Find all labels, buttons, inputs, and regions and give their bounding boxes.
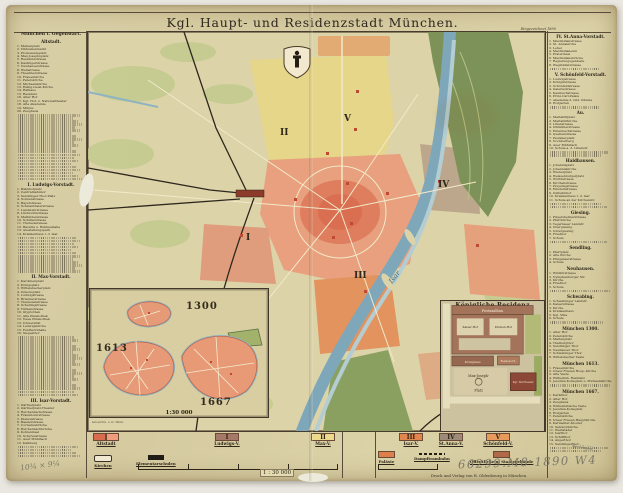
index-section-header: München 1300.	[549, 326, 612, 331]
maxjoseph-label-1: Max-Joseph-	[468, 374, 489, 378]
scanned-map-sheet: Kgl. Haupt- und Residenzstadt München. E…	[0, 0, 623, 493]
scale-bar	[138, 464, 338, 470]
street	[443, 304, 450, 409]
index-entry-illegible	[550, 68, 600, 71]
legend-swatch	[93, 433, 106, 441]
legend-district-ludwigsv: ILudwigs-V.	[212, 433, 242, 447]
inset-credit: Gezeichn. v. G. Wenz	[92, 420, 124, 424]
legend-district-isarv: IIIIsar-V.	[396, 433, 426, 447]
garden	[525, 314, 541, 354]
index-entry: 4. Schule	[549, 261, 612, 264]
year-label-1613: 1613	[96, 343, 128, 354]
district-numeral-1: I	[246, 233, 250, 243]
munich-1300-shape	[128, 302, 171, 326]
residenztheater-label: Residenz-Th.	[501, 360, 517, 363]
kuechenhof-label: Küchen-Hof	[495, 325, 513, 329]
legend-symbol-swatch: Paläste	[378, 451, 395, 464]
legend-district-maxv: IIMax-V.	[306, 433, 340, 447]
index-entry-illegible	[18, 394, 79, 397]
inset-scale-label: 1:30 000	[166, 410, 193, 416]
hoftheater-label: Kgl. Hof-Theater	[513, 381, 535, 384]
index-header: München i. Gegenwart.	[17, 32, 85, 37]
date-note: Eingezeichnet 1890	[521, 27, 556, 31]
koenigsbau-label: Königsbau	[465, 360, 481, 364]
index-section-header: Sendling.	[549, 245, 612, 250]
legend-swatch: III	[399, 433, 423, 441]
street-index-left: München i. Gegenwart. Altstadt.1. Marien…	[17, 32, 85, 478]
maxjoseph-label-2: Platz	[474, 389, 483, 393]
legend-swatch	[106, 433, 119, 441]
index-entry-illegible	[550, 241, 607, 244]
swatch-symbol-icon	[378, 451, 395, 458]
paper: Kgl. Haupt- und Residenzstadt München. E…	[6, 5, 617, 481]
page-title: Kgl. Haupt- und Residenzstadt München.	[167, 15, 459, 30]
index-entry-illegible	[550, 206, 607, 209]
festsaalbau-label: Festsaalbau	[482, 309, 504, 313]
legend-district-label: Altstadt	[90, 442, 122, 447]
inset-historic-maps: 1300 1613 1667 1:30 000	[89, 288, 269, 418]
inset-residenz: Königliche Residenz 1:10 000 Festsaalbau…	[440, 300, 545, 432]
legend-swatch: IV	[439, 433, 463, 441]
year-label-1300: 1300	[186, 301, 218, 312]
index-section-header: Altstadt.	[17, 39, 85, 44]
legend-swatch: II	[311, 433, 335, 441]
city-map: I II III IV V Isar	[88, 32, 545, 431]
schwabing-area	[318, 36, 390, 56]
index-section-header: Haidhausen.	[549, 158, 612, 163]
index-entry-illegible	[550, 384, 610, 387]
index-entry-illegible	[18, 455, 81, 458]
index-section-header: München 1613.	[549, 361, 612, 366]
index-entry-illegible	[550, 290, 610, 293]
index-section-header: Schwabing.	[549, 294, 612, 299]
index-section-header: Giesing.	[549, 210, 612, 215]
legend-district-label: Ludwigs-V.	[212, 442, 242, 447]
tram-symbol-icon	[419, 453, 445, 455]
legend-symbol-label: Kirchen	[94, 463, 112, 468]
divider	[547, 31, 548, 478]
legend-swatch: V	[486, 433, 510, 441]
scale-label: 1 : 30 000	[260, 469, 294, 477]
legend-symbol-church: Kirchen	[94, 455, 112, 468]
district-numeral-4: IV	[438, 180, 450, 190]
index-section-header: IV. St.Anna-Vorstadt.	[549, 34, 612, 39]
index-section-header: Au.	[549, 110, 612, 115]
year-label-1667: 1667	[200, 397, 232, 408]
title-band: Kgl. Haupt- und Residenzstadt München. E…	[14, 12, 611, 33]
legend-band: AltstadtILudwigs-V.IIMax-V.IIIIsar-V.IVS…	[88, 431, 545, 478]
district-numeral-2: II	[280, 128, 288, 138]
index-section-header: II. Max-Vorstadt.	[17, 274, 85, 279]
school-symbol-icon	[148, 455, 164, 460]
street-index-right: IV. St.Anna-Vorstadt.1. Maximilianstrass…	[549, 32, 612, 478]
legend-symbol-tram: Dampftrambahn	[414, 451, 450, 461]
index-section-header: I. Ludwigs-Vorstadt.	[17, 182, 85, 187]
damage-patch	[298, 473, 328, 482]
index-entry: 8. Wittelsbacher Veste	[549, 356, 612, 359]
historic-maps-graphic: 1300 1613 1667 1:30 000	[90, 289, 268, 417]
index-entry-illegible	[550, 154, 602, 157]
scale-bar-2	[378, 464, 438, 470]
index-section-header: Neuhausen.	[549, 266, 612, 271]
inner-court	[459, 338, 510, 350]
index-entry-illegible	[550, 106, 600, 109]
max-vorstadt-area	[250, 54, 394, 170]
index-section-header: München 1667.	[549, 389, 612, 394]
haidhausen-area	[464, 224, 540, 300]
legend-district-schnfeldv: VSchönfeld-V.	[476, 433, 520, 447]
legend-district-label: Max-V.	[306, 442, 340, 447]
index-section-header: V. Schönfeld-Vorstadt.	[549, 72, 612, 77]
legend-district-altstadt: Altstadt	[90, 433, 122, 447]
central-station	[236, 190, 264, 197]
index-entry-illegible	[550, 321, 603, 324]
legend-district-label: Schönfeld-V.	[476, 442, 520, 447]
district-numeral-3: III	[354, 271, 367, 281]
district-numeral-5: V	[343, 114, 352, 124]
legend-district-stannav: IVSt.Anna-V.	[434, 433, 468, 447]
legend-district-label: St.Anna-V.	[434, 442, 468, 447]
church-symbol-icon	[94, 455, 112, 462]
legend-swatch: I	[215, 433, 239, 441]
index-section-header: III. Isar-Vorstadt.	[17, 398, 85, 403]
street	[443, 397, 540, 404]
residenz-plan: Festsaalbau Kaiser-Hof Küchen-Hof Königs…	[441, 301, 544, 415]
legend-symbol-label: Dampftrambahn	[414, 456, 450, 461]
ludwigs-vorstadt-area	[200, 224, 276, 284]
munich-1667-shape	[182, 329, 262, 399]
divider	[86, 31, 87, 478]
imprint: Druck und Verlag von R. Oldenbourg in Mü…	[394, 473, 564, 478]
index-entry-illegible	[18, 270, 80, 273]
index-entry-illegible	[18, 178, 83, 181]
legend-district-label: Isar-V.	[396, 442, 426, 447]
kaiserhof-label: Kaiser-Hof	[462, 325, 478, 329]
